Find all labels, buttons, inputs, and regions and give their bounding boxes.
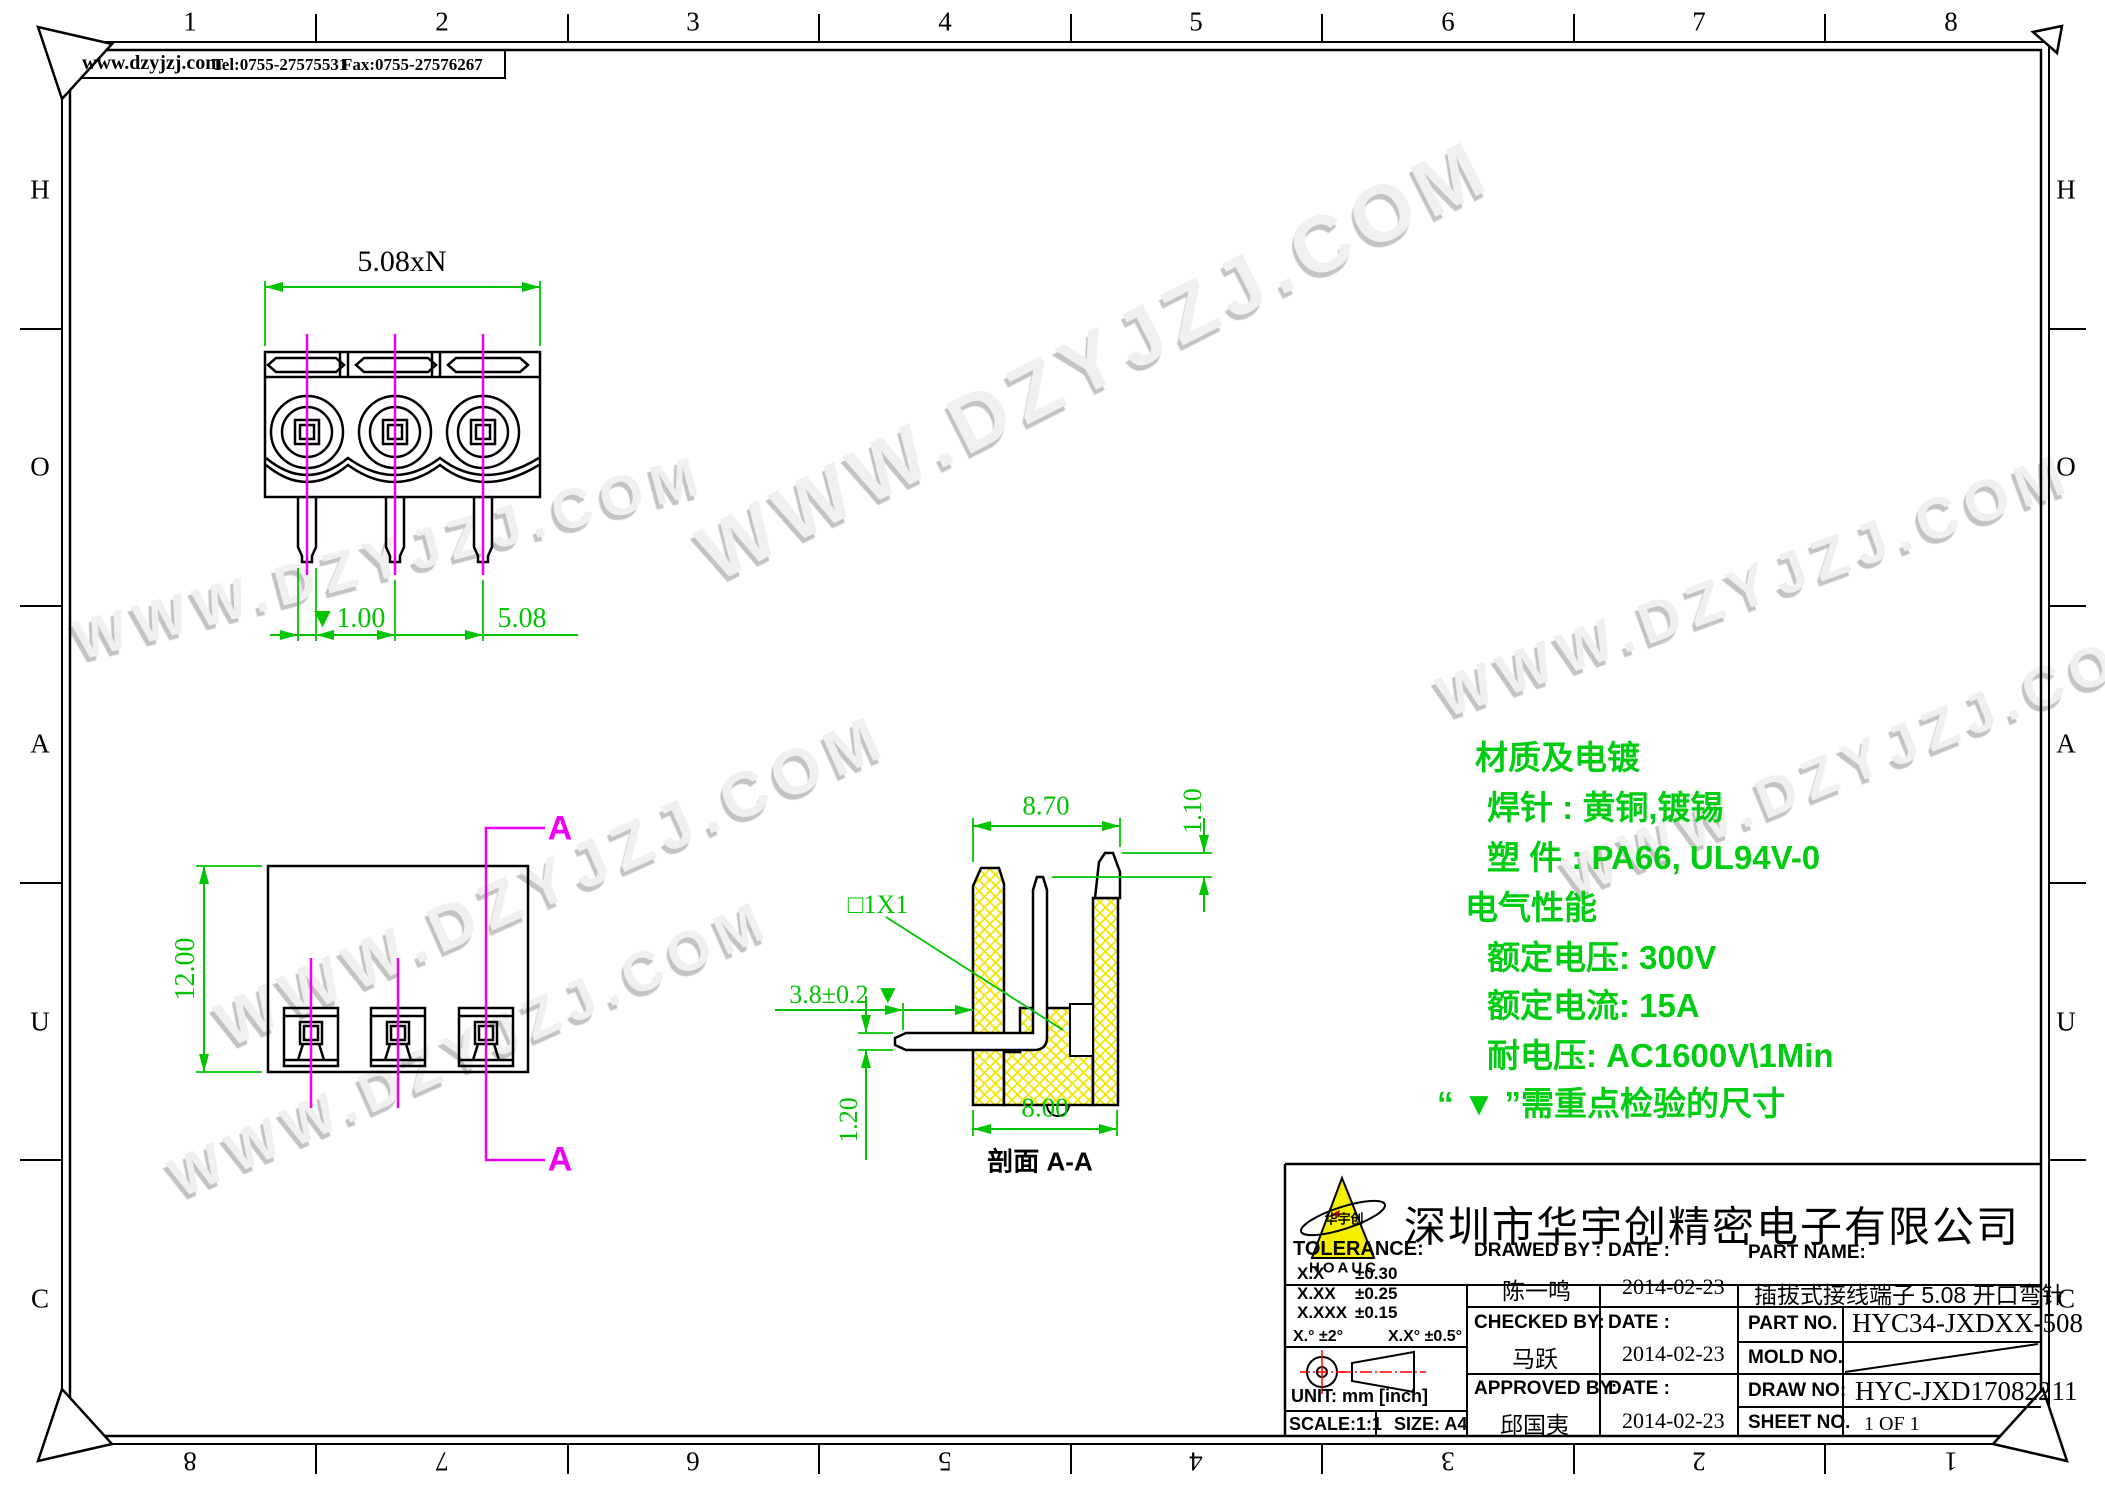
dim-pin-protrusion: 3.8±0.2 ▼ [789, 980, 901, 1010]
dim-pin-width: ▼1.00 [309, 603, 386, 635]
zone-right-1: H [2056, 175, 2076, 206]
date-label-2: DATE : [1608, 1312, 1670, 1334]
zone-top-6: 6 [1441, 7, 1455, 38]
spec-electrical-title: 电气性能 [1465, 881, 1597, 929]
section-line-A-A [486, 828, 545, 1160]
zone-top-1: 1 [183, 7, 197, 38]
tol-angle-1: X.° ±2° [1293, 1328, 1343, 1346]
draw-no-label: DRAW NO: [1748, 1380, 1846, 1402]
section-right-tooth [1095, 853, 1120, 898]
zone-left-5: C [31, 1284, 49, 1315]
dim-pitch: 5.08 [498, 603, 547, 635]
section-view [895, 853, 1120, 1116]
front-view-centerlines [307, 334, 483, 575]
date-label-1: DATE : [1608, 1240, 1670, 1262]
zone-bottom-5: 4 [1189, 1446, 1203, 1477]
scale-label: SCALE:1:1 [1289, 1414, 1382, 1435]
date-value-1: 2014-02-23 [1622, 1274, 1725, 1300]
checked-by-value: 马跃 [1512, 1340, 1558, 1374]
zone-left-3: A [30, 729, 50, 760]
spec-inspection-note: “ ▼ ”需重点检验的尺寸 [1437, 1077, 1785, 1125]
front-view-dimensions [265, 281, 578, 641]
approved-by-label: APPROVED BY: [1474, 1378, 1617, 1400]
date-value-3: 2014-02-23 [1622, 1408, 1725, 1434]
spec-material-title: 材质及电镀 [1475, 731, 1640, 779]
drawing-linework [0, 0, 2105, 1488]
spec-plastic-material: 塑 件 : PA66, UL94V-0 [1487, 831, 1820, 879]
zone-top-7: 7 [1692, 7, 1706, 38]
dim-pitch-total: 5.08xN [357, 245, 446, 279]
zone-bottom-2: 7 [435, 1446, 449, 1477]
zone-left-1: H [30, 175, 50, 206]
contact-website: www.dzyjzj.com [82, 52, 222, 75]
dim-pin-thickness: 1.20 [834, 1097, 864, 1143]
tol-row3-val: ±0.15 [1355, 1303, 1397, 1323]
tol-row2-val: ±0.25 [1355, 1284, 1397, 1304]
dim-section-bottom-width: 8.00 [1021, 1093, 1068, 1124]
checked-by-label: CHECKED BY: [1474, 1312, 1605, 1334]
drawing-sheet: WWW.DZYJZJ.COM WWW.DZYJZJ.COM WWW.DZYJZJ… [0, 0, 2105, 1488]
side-view-dimensions [196, 866, 262, 1072]
zone-bottom-7: 2 [1692, 1446, 1706, 1477]
tol-row2-key: X.XX [1297, 1284, 1336, 1304]
part-name-value: 插拔式接线端子 5.08 开口弯针 [1754, 1276, 2065, 1310]
zone-bottom-3: 6 [686, 1446, 700, 1477]
zone-top-4: 4 [938, 7, 952, 38]
logo-cn-text: 华宇创 [1324, 1209, 1363, 1228]
part-name-label: PART NAME: [1748, 1242, 1866, 1264]
zone-bottom-4: 5 [938, 1446, 952, 1477]
tol-row1-key: X.X [1297, 1264, 1324, 1284]
side-view-centerlines [311, 828, 545, 1160]
section-label-bottom: A [548, 1141, 573, 1180]
tol-row3-key: X.XXX [1297, 1303, 1347, 1323]
zone-top-2: 2 [435, 7, 449, 38]
approved-by-value: 邱国夷 [1500, 1406, 1569, 1440]
zone-top-8: 8 [1944, 7, 1958, 38]
tol-angle-2: X.X° ±0.5° [1388, 1328, 1462, 1346]
zone-top-5: 5 [1189, 7, 1203, 38]
date-label-3: DATE : [1608, 1378, 1670, 1400]
spec-rated-current: 额定电流: 15A [1487, 979, 1700, 1027]
sheet-no-value: 1 OF 1 [1864, 1413, 1920, 1436]
tol-row1-val: ±0.30 [1355, 1264, 1397, 1284]
dim-height: 12.00 [170, 938, 202, 1001]
size-label: SIZE: A4 [1394, 1414, 1467, 1435]
section-cavity [1070, 1004, 1093, 1056]
part-no-label: PART NO. [1748, 1313, 1837, 1335]
dim-pin-square-note: □1X1 [848, 890, 908, 920]
zone-left-2: O [30, 452, 50, 483]
sheet-no-label: SHEET NO. [1748, 1412, 1850, 1434]
section-left-wall [973, 868, 1004, 1105]
drawed-by-value: 陈一鸣 [1502, 1272, 1571, 1306]
zone-left-4: U [30, 1007, 50, 1038]
spec-rated-voltage: 额定电压: 300V [1487, 931, 1716, 979]
dim-section-top-width: 8.70 [1022, 791, 1069, 822]
unit-label: UNIT: mm [inch] [1291, 1386, 1428, 1407]
zone-right-2: O [2056, 452, 2076, 483]
draw-no-value: HYC-JXD17082211 [1855, 1376, 2078, 1407]
zone-top-3: 3 [686, 7, 700, 38]
tolerance-label: TOLERANCE: [1293, 1238, 1424, 1261]
spec-withstand-voltage: 耐电压: AC1600V\1Min [1487, 1029, 1834, 1077]
drawed-by-label: DRAWED BY : [1474, 1240, 1601, 1262]
part-no-value: HYC34-JXDXX-508 [1852, 1308, 2083, 1339]
zone-bottom-8: 1 [1944, 1446, 1958, 1477]
mold-no-label: MOLD NO. [1748, 1347, 1843, 1369]
zone-bottom-1: 8 [183, 1446, 197, 1477]
date-value-2: 2014-02-23 [1622, 1341, 1725, 1367]
zone-bottom-6: 3 [1441, 1446, 1455, 1477]
contact-fax: Fax:0755-27576267 [342, 55, 483, 75]
zone-right-4: U [2056, 1007, 2076, 1038]
zone-right-3: A [2056, 729, 2076, 760]
section-right-wall [1093, 898, 1118, 1105]
spec-pin-material: 焊针 : 黄铜,镀锡 [1487, 781, 1724, 829]
mold-no-diagonal [1845, 1344, 2038, 1372]
contact-tel: Tel:0755-27575531 [212, 55, 347, 75]
section-label-top: A [548, 810, 573, 849]
dim-tooth-height: 1.10 [1178, 788, 1208, 834]
section-caption: 剖面 A-A [987, 1142, 1092, 1179]
